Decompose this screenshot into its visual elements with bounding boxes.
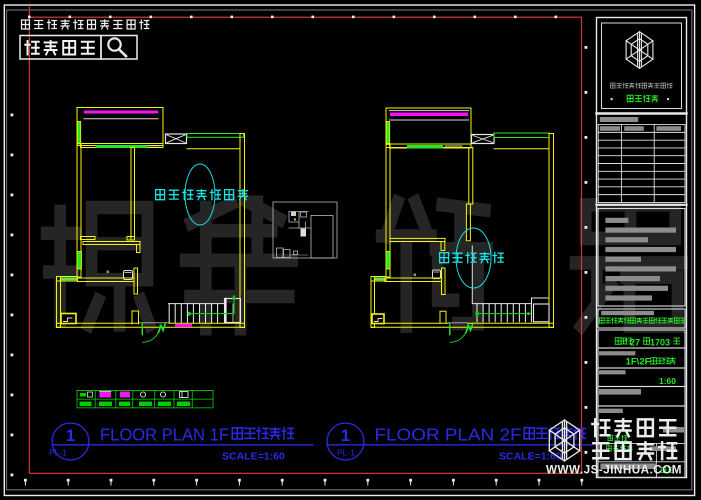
svg-text:1703: 1703 [650, 338, 670, 348]
svg-text:PL-1: PL-1 [49, 448, 67, 458]
svg-text:WWW.JS-JINHUA.COM: WWW.JS-JINHUA.COM [546, 463, 682, 477]
svg-text:1: 1 [341, 427, 350, 445]
svg-text:1: 1 [66, 427, 75, 445]
svg-text:SCALE=1:60: SCALE=1:60 [222, 451, 285, 463]
svg-text:FLOOR PLAN 1F: FLOOR PLAN 1F [100, 425, 229, 445]
svg-text:27: 27 [630, 338, 640, 348]
svg-text:1F\2F: 1F\2F [626, 357, 651, 368]
svg-text:PL-1: PL-1 [337, 448, 355, 458]
svg-text:FLOOR PLAN 2F: FLOOR PLAN 2F [375, 425, 522, 445]
svg-text:1:60: 1:60 [659, 376, 676, 386]
